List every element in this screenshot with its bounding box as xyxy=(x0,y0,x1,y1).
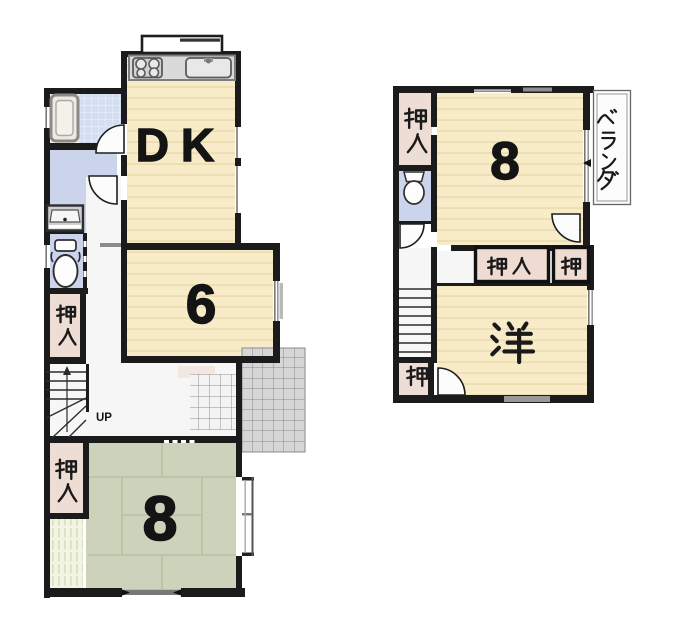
svg-text:6: 6 xyxy=(186,273,217,335)
svg-text:8: 8 xyxy=(142,484,177,554)
svg-text:UP: UP xyxy=(96,412,112,424)
svg-text:DK: DK xyxy=(136,119,226,171)
svg-text:8: 8 xyxy=(490,132,519,191)
